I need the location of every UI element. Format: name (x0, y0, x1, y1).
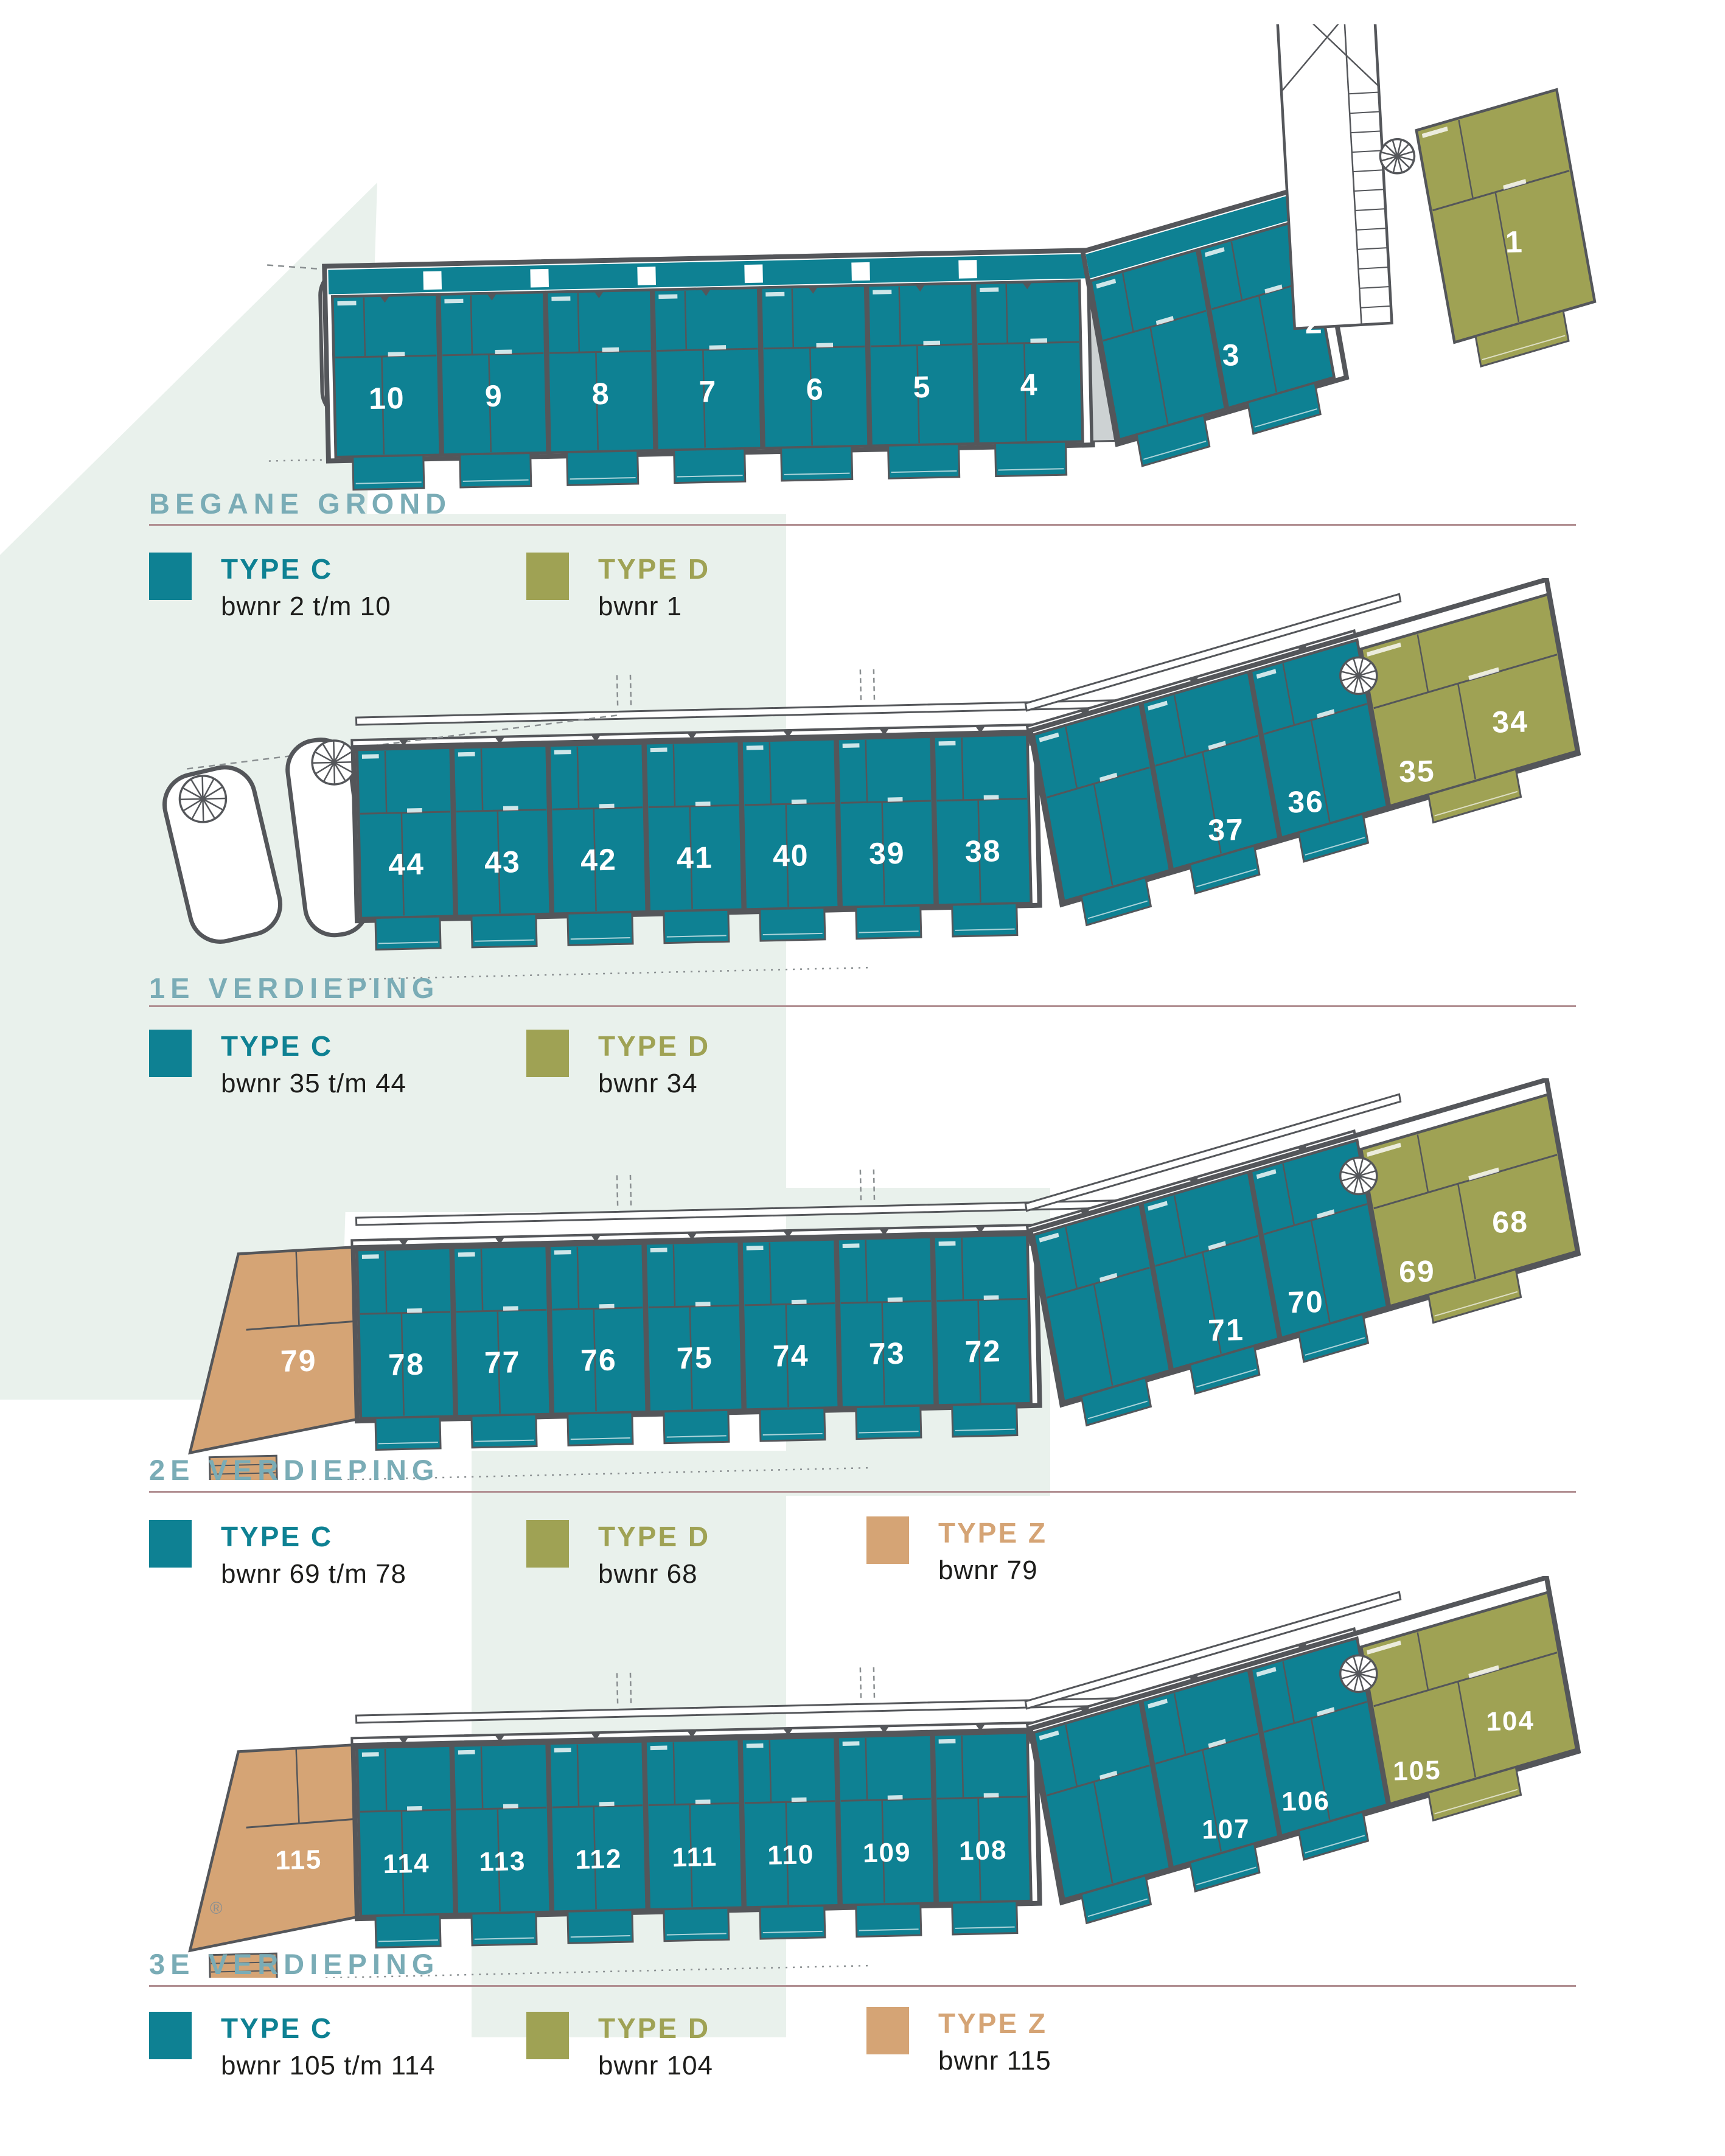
unit-number-label: 10 (368, 381, 405, 416)
balcony (567, 451, 638, 485)
unit-109 (837, 1735, 935, 1905)
unit-number-label: 105 (1393, 1756, 1442, 1787)
type-c-swatch (149, 1030, 192, 1077)
floorplan-3e-verdieping: 115114113112111110109108107106105104 (116, 1576, 1698, 1978)
balcony (568, 912, 633, 945)
type-d-swatch (526, 1520, 569, 1568)
unit-41 (646, 741, 743, 912)
legend-2-type-z: TYPE Z bwnr 79 (866, 1516, 1207, 1614)
leader-line (269, 460, 329, 461)
balcony (760, 1906, 825, 1939)
unit-number-label: 8 (591, 377, 610, 411)
unit-number-label: 110 (767, 1840, 815, 1871)
floor-group: 797877767574737271706968 (181, 1078, 1610, 1480)
type-c-range: bwnr 69 t/m 78 (221, 1559, 406, 1589)
leader-line (860, 1170, 861, 1203)
unit-5 (868, 283, 975, 446)
roof-band (356, 700, 1118, 725)
leader-line (860, 1667, 861, 1701)
legend-1-type-c: TYPE C bwnr 35 t/m 44 (149, 1030, 490, 1127)
type-d-label: TYPE D (598, 1030, 710, 1062)
unit-number-label: 2 (1305, 305, 1323, 340)
leader-line (267, 264, 318, 270)
wing-group (1000, 578, 1606, 932)
balcony (375, 1417, 441, 1450)
type-d-swatch (526, 1030, 569, 1077)
unit-number-label: 38 (964, 834, 1002, 868)
unit-number-label: 109 (863, 1837, 912, 1868)
unit-number-label: 34 (1492, 704, 1529, 739)
unit-number-label: 75 (676, 1341, 713, 1375)
unit-number-label: 77 (484, 1345, 521, 1380)
type-z-range: bwnr 79 (938, 1555, 1038, 1586)
balcony (375, 916, 441, 949)
unit-number-label: 36 (1288, 784, 1325, 819)
unit-number-label: 79 (280, 1344, 317, 1378)
section-title-begane-grond: BEGANE GROND (149, 487, 451, 520)
balcony (674, 448, 745, 483)
unit-38 (933, 734, 1031, 905)
unit-number-label: 108 (959, 1835, 1008, 1866)
type-d-range: bwnr 68 (598, 1559, 698, 1589)
balcony (781, 447, 852, 481)
type-d-label: TYPE D (598, 2012, 710, 2045)
leader-line (617, 1673, 618, 1706)
leader-line (630, 675, 631, 708)
section-title-2e-verdieping: 2E VERDIEPING (149, 1453, 439, 1487)
stair-tower (1275, 24, 1392, 329)
unit-number-label: 68 (1492, 1204, 1529, 1239)
unit-number-label: 7 (699, 374, 717, 409)
skylight (423, 271, 442, 290)
balcony (375, 1914, 441, 1947)
unit-number-label: 76 (580, 1342, 617, 1377)
unit-number-label: 43 (484, 845, 521, 879)
divider-2 (149, 1491, 1576, 1493)
unit-number-label: 1 (1505, 225, 1524, 259)
unit-number-label: 114 (383, 1848, 430, 1879)
balcony (664, 910, 729, 943)
wing-group (1000, 1078, 1606, 1432)
unit-number-label: 9 (484, 379, 503, 413)
divider-1 (149, 1005, 1576, 1007)
balcony (856, 905, 921, 938)
unit-number-label: 106 (1281, 1786, 1331, 1817)
balcony (353, 455, 424, 489)
type-c-swatch (149, 2012, 192, 2059)
unit-number-label: 4 (1020, 368, 1039, 402)
type-z-label: TYPE Z (938, 1516, 1047, 1549)
type-c-swatch (149, 1520, 192, 1568)
unit-number-label: 40 (772, 838, 809, 873)
legend-3-type-z: TYPE Z bwnr 115 (866, 2007, 1207, 2104)
unit-72 (933, 1235, 1031, 1405)
unit-number-label: 69 (1398, 1254, 1435, 1289)
legend-0-type-d: TYPE D bwnr 1 (526, 553, 867, 650)
type-z-swatch (866, 2007, 909, 2054)
unit-number-label: 44 (388, 847, 425, 882)
balcony (472, 914, 537, 947)
skylight (851, 262, 870, 281)
floor-group: 115114113112111110109108107106105104 (181, 1576, 1610, 1978)
leader-line (630, 1673, 631, 1706)
type-c-label: TYPE C (221, 553, 333, 585)
unit-7 (653, 288, 761, 451)
leader-line (874, 1667, 874, 1701)
unit-113 (453, 1743, 551, 1914)
ground-floor-group: 10987654321 (262, 24, 1628, 492)
legend-2-type-c: TYPE C bwnr 69 t/m 78 (149, 1520, 490, 1617)
balcony (856, 1903, 921, 1936)
leader-line (874, 1170, 874, 1203)
balcony (568, 1910, 633, 1943)
spiral-stair-icon (179, 775, 227, 823)
type-c-label: TYPE C (221, 1520, 333, 1553)
unit-8 (546, 290, 654, 453)
leader-line (860, 669, 861, 703)
balcony (888, 444, 960, 478)
unit-110 (741, 1737, 838, 1907)
type-d-range: bwnr 34 (598, 1069, 698, 1099)
balcony (952, 1902, 1017, 1934)
type-z-label: TYPE Z (938, 2007, 1047, 2040)
unit-76 (549, 1243, 647, 1414)
skylight (744, 265, 763, 284)
unit-number-label: 37 (1208, 812, 1245, 847)
unit-6 (761, 285, 868, 448)
legend-0-type-c: TYPE C bwnr 2 t/m 10 (149, 553, 490, 650)
type-c-range: bwnr 105 t/m 114 (221, 2051, 436, 2081)
unit-112 (549, 1741, 647, 1911)
unit-73 (837, 1237, 935, 1408)
balcony (568, 1412, 633, 1445)
roof-band (356, 1201, 1118, 1225)
balcony (760, 1408, 825, 1441)
unit-number-label: 115 (275, 1844, 322, 1875)
unit-115 (186, 1745, 361, 1950)
legend-2-type-d: TYPE D bwnr 68 (526, 1520, 867, 1617)
section-title-1e-verdieping: 1E VERDIEPING (149, 971, 439, 1005)
unit-number-label: 112 (575, 1844, 622, 1875)
type-z-range: bwnr 115 (938, 2046, 1051, 2076)
type-d-range: bwnr 104 (598, 2051, 713, 2081)
divider-0 (149, 524, 1576, 526)
unit-number-label: 111 (672, 1842, 718, 1873)
unit-9 (439, 292, 547, 455)
unit-44 (357, 748, 455, 918)
floorplan-begane-grond: 10987654321 (262, 24, 1643, 499)
unit-number-label: 35 (1398, 754, 1435, 789)
roof-band (356, 1698, 1118, 1723)
balcony (760, 908, 825, 941)
balcony (472, 1414, 537, 1447)
balcony (472, 1912, 537, 1945)
unit-number-label: 6 (806, 372, 824, 406)
unit-number-label: 113 (479, 1846, 526, 1877)
unit-1 (1417, 89, 1595, 342)
unit-79 (186, 1247, 361, 1453)
skylight (530, 269, 549, 288)
legend-3-type-c: TYPE C bwnr 105 t/m 114 (149, 2012, 490, 2109)
unit-number-label: 42 (580, 842, 617, 877)
type-c-range: bwnr 2 t/m 10 (221, 591, 391, 622)
unit-number-label: 107 (1202, 1814, 1251, 1845)
unit-39 (837, 737, 935, 907)
brochure-page: 10987654321 4443424140393837363534 79787… (0, 0, 1725, 2156)
balcony (995, 442, 1067, 476)
unit-114 (357, 1746, 455, 1916)
balcony (664, 1908, 729, 1941)
balcony (952, 904, 1017, 937)
balcony (856, 1406, 921, 1439)
type-d-label: TYPE D (598, 553, 710, 585)
unit-number-label: 74 (772, 1338, 809, 1373)
type-c-range: bwnr 35 t/m 44 (221, 1069, 406, 1099)
unit-78 (357, 1248, 455, 1418)
unit-4 (975, 281, 1082, 444)
unit-75 (646, 1241, 743, 1412)
balcony (952, 1404, 1017, 1437)
leader-line (617, 675, 618, 708)
unit-number-label: 78 (388, 1347, 425, 1382)
type-c-swatch (149, 553, 192, 600)
unit-number-label: 104 (1486, 1706, 1535, 1737)
legend-1-type-d: TYPE D bwnr 34 (526, 1030, 867, 1127)
balcony (664, 1410, 729, 1443)
unit-108 (933, 1732, 1031, 1903)
divider-3 (149, 1985, 1576, 1987)
type-c-label: TYPE C (221, 2012, 333, 2045)
legend-3-type-d: TYPE D bwnr 104 (526, 2012, 867, 2109)
spiral-stair-icon (312, 740, 357, 785)
balcony (460, 453, 531, 487)
unit-40 (741, 739, 838, 909)
leader-line (617, 1175, 618, 1209)
unit-111 (646, 1739, 743, 1910)
unit-number-label: 5 (913, 370, 932, 405)
unit-number-label: 71 (1208, 1313, 1245, 1347)
unit-number-label: 39 (868, 836, 905, 871)
unit-42 (549, 743, 647, 913)
unit-43 (453, 745, 551, 916)
leader-line (874, 669, 874, 703)
unit-number-label: 73 (868, 1336, 905, 1371)
skylight (637, 267, 656, 285)
section-title-3e-verdieping: 3E VERDIEPING (149, 1947, 439, 1981)
unit-10 (332, 295, 440, 458)
unit-number-label: 72 (964, 1334, 1002, 1369)
floorplan-2e-verdieping: 797877767574737271706968 (116, 1078, 1698, 1480)
type-d-range: bwnr 1 (598, 591, 682, 622)
wing-group (1000, 1576, 1606, 1930)
unit-number-label: 41 (676, 840, 713, 875)
type-c-label: TYPE C (221, 1030, 333, 1062)
unit-number-label: 70 (1288, 1285, 1325, 1319)
unit-77 (453, 1246, 551, 1416)
type-d-swatch (526, 553, 569, 600)
type-d-label: TYPE D (598, 1520, 710, 1553)
unit-number-label: 3 (1222, 338, 1241, 372)
leader-line (630, 1175, 631, 1209)
type-z-swatch (866, 1516, 909, 1564)
type-d-swatch (526, 2012, 569, 2059)
skylight (958, 260, 977, 279)
unit-74 (741, 1239, 838, 1409)
registered-mark: ® (210, 1899, 223, 1918)
